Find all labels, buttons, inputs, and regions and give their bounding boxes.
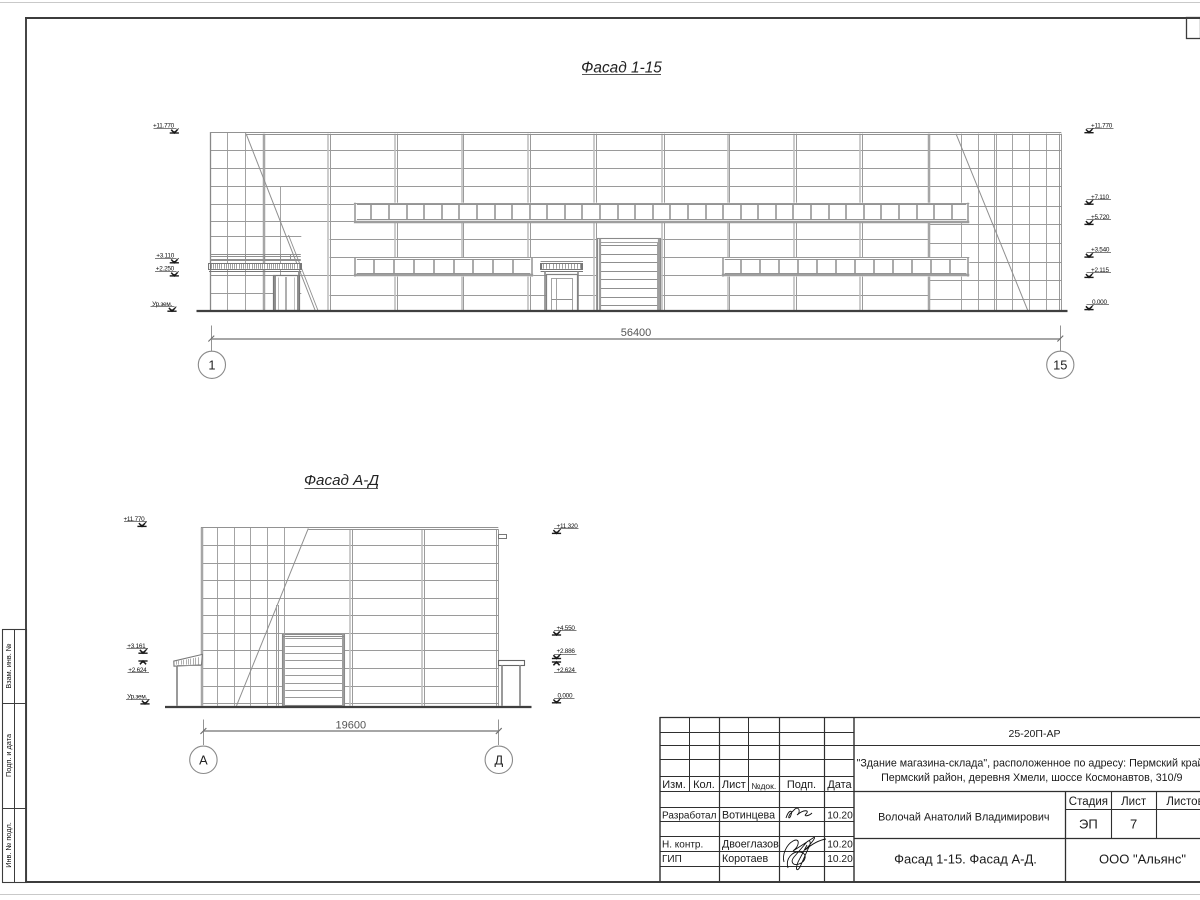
svg-text:Фасад 1-15. Фасад А-Д.: Фасад 1-15. Фасад А-Д.: [894, 851, 1037, 866]
svg-text:19600: 19600: [336, 720, 367, 732]
svg-text:Стадия: Стадия: [1069, 796, 1108, 808]
svg-text:25-20П-АР: 25-20П-АР: [1009, 728, 1061, 740]
svg-text:10.20: 10.20: [827, 811, 853, 822]
svg-text:0.000: 0.000: [1092, 299, 1107, 306]
svg-text:Фасад А-Д: Фасад А-Д: [304, 472, 379, 489]
svg-text:10.20: 10.20: [827, 839, 853, 850]
svg-text:Подп. и дата: Подп. и дата: [4, 733, 13, 777]
svg-text:Изм.: Изм.: [662, 779, 686, 791]
svg-text:+3.161: +3.161: [127, 643, 146, 650]
svg-text:+2.624: +2.624: [128, 667, 147, 674]
svg-text:Инв. № подл.: Инв. № подл.: [4, 822, 13, 867]
svg-text:+2.115: +2.115: [1091, 267, 1109, 274]
svg-text:10.20: 10.20: [827, 854, 853, 865]
svg-text:ЭП: ЭП: [1079, 817, 1098, 832]
svg-text:Н. контр.: Н. контр.: [662, 839, 703, 850]
svg-text:Разработал: Разработал: [662, 810, 717, 822]
svg-text:Лист: Лист: [722, 779, 746, 791]
svg-text:56400: 56400: [621, 327, 652, 339]
svg-text:А: А: [199, 752, 208, 767]
svg-text:Взам. инв. №: Взам. инв. №: [4, 643, 13, 688]
svg-text:Листов: Листов: [1166, 796, 1200, 808]
svg-text:+5.720: +5.720: [1091, 214, 1110, 221]
svg-text:Дата: Дата: [827, 779, 852, 791]
svg-text:+2.624: +2.624: [557, 667, 576, 674]
svg-text:Фасад 1-15: Фасад 1-15: [581, 59, 662, 76]
svg-text:Коротаев: Коротаев: [722, 853, 768, 865]
svg-text:Волочай Анатолий Владимирович: Волочай Анатолий Владимирович: [878, 812, 1049, 824]
svg-text:Двоеглазов: Двоеглазов: [722, 838, 779, 850]
svg-text:Д: Д: [494, 752, 503, 767]
svg-text:+11.320: +11.320: [557, 523, 579, 530]
svg-text:Вотинцева: Вотинцева: [722, 810, 775, 822]
svg-text:ГИП: ГИП: [662, 854, 682, 865]
svg-text:№док.: №док.: [751, 781, 776, 791]
svg-text:Подп.: Подп.: [787, 779, 816, 791]
svg-text:1: 1: [208, 357, 215, 372]
svg-text:15: 15: [1053, 357, 1067, 372]
svg-text:ООО "Альянс": ООО "Альянс": [1099, 851, 1186, 866]
svg-text:"Здание магазина-склада", расп: "Здание магазина-склада", расположенное …: [857, 758, 1200, 770]
svg-text:Кол.: Кол.: [693, 779, 715, 791]
svg-text:Пермский район, деревня Хмели,: Пермский район, деревня Хмели, шоссе Кос…: [881, 772, 1182, 784]
svg-text:+11.770: +11.770: [123, 516, 145, 523]
svg-text:Лист: Лист: [1121, 796, 1147, 808]
svg-text:7: 7: [1130, 817, 1137, 832]
